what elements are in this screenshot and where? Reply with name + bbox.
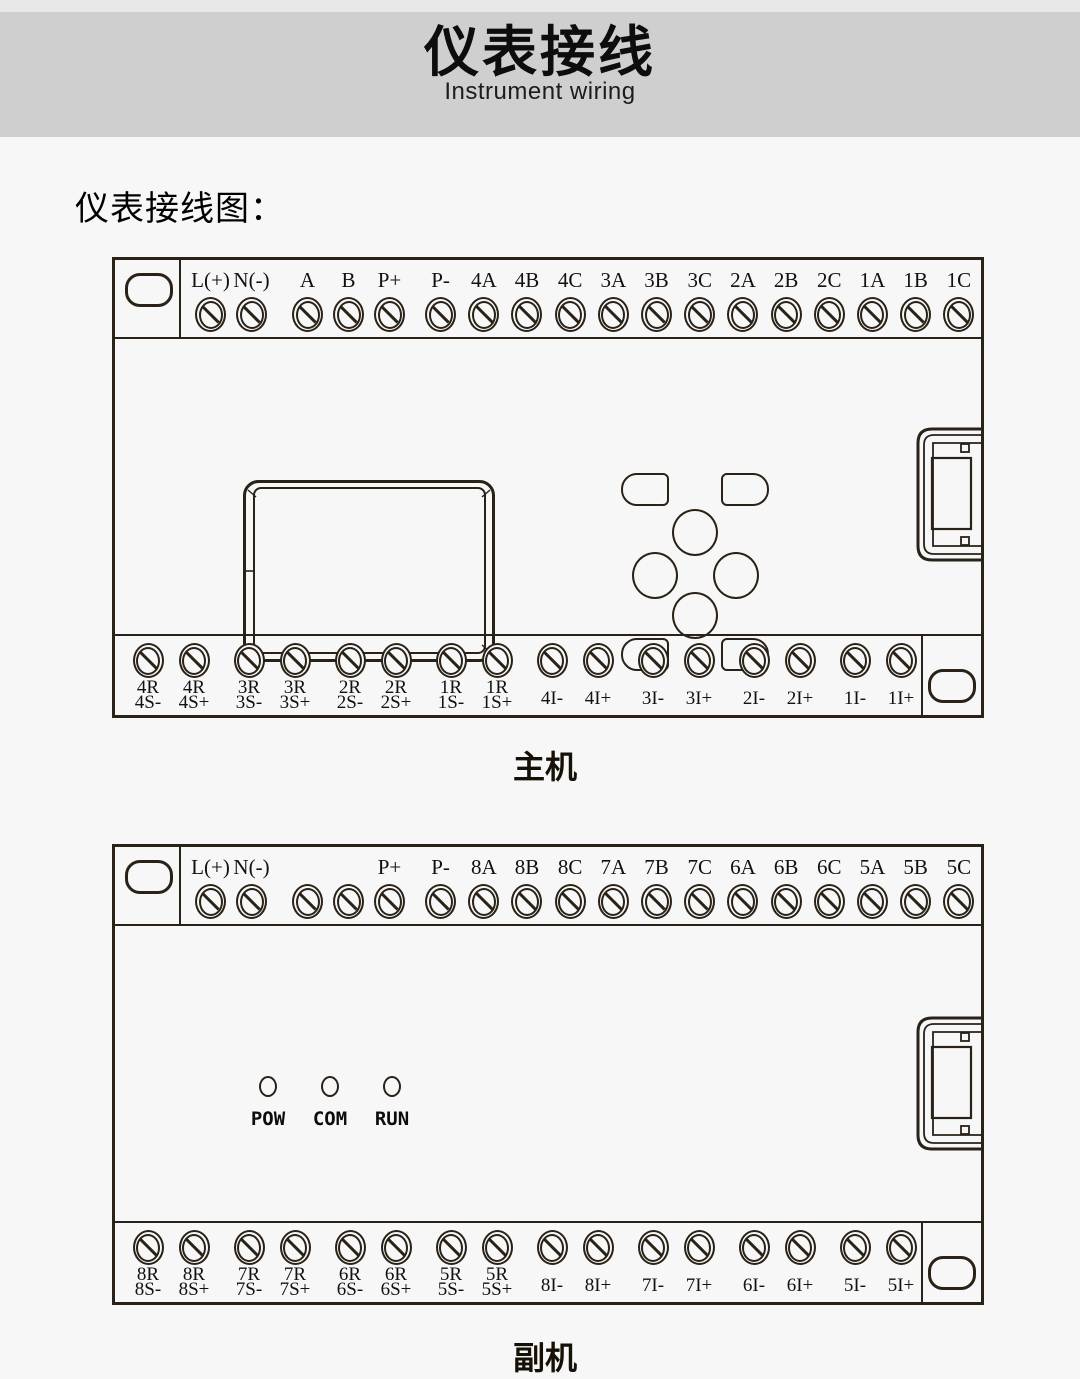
- screw-terminal-icon: [785, 643, 816, 678]
- terminal-label-line: 5S+: [482, 1282, 513, 1297]
- terminal: 8I+: [575, 1230, 621, 1302]
- key-button-right: [713, 552, 759, 599]
- terminal: 7R7S-: [226, 1230, 272, 1302]
- terminal-label: 8C: [558, 856, 583, 879]
- pow-led-icon: [259, 1076, 277, 1097]
- terminal: 4B: [505, 260, 548, 337]
- screw-terminal-icon: [236, 297, 267, 332]
- terminal-group: 2R2S-2R2S+: [327, 643, 419, 715]
- terminal-label: 2A: [730, 269, 756, 292]
- terminal-label: P-: [431, 856, 450, 879]
- terminal: B: [328, 260, 369, 337]
- terminal-label: 4B: [515, 269, 540, 292]
- terminal-label-line: 1I+: [888, 691, 915, 706]
- terminal-label-line: 3S+: [280, 695, 311, 710]
- terminal: 3C: [678, 260, 721, 337]
- main-bottom-terminals: 4R4S-4R4S+3R3S-3R3S+2R2S-2R2S+1R1S-1R1S+…: [115, 636, 921, 715]
- screw-terminal-icon: [335, 643, 366, 678]
- terminal-group: P-4A4B4C3A3B3C2A2B2C1A1B1C: [419, 260, 980, 337]
- main-unit-caption: 主机: [112, 742, 978, 788]
- led-label: RUN: [375, 1108, 409, 1130]
- screw-terminal-icon: [727, 297, 758, 332]
- screw-terminal-icon: [335, 1230, 366, 1265]
- screw-terminal-icon: [943, 884, 974, 919]
- aux-bottom-terminals: 8R8S-8R8S+7R7S-7R7S+6R6S-6R6S+5R5S-5R5S+…: [115, 1223, 921, 1302]
- terminal-label: 8R8S+: [179, 1267, 210, 1297]
- terminal-label: 8I+: [585, 1267, 612, 1300]
- screw-terminal-icon: [234, 1230, 265, 1265]
- screw-terminal-icon: [195, 297, 226, 332]
- terminal-label: 1B: [903, 269, 928, 292]
- screw-terminal-icon: [739, 1230, 770, 1265]
- terminal-label: 4C: [558, 269, 583, 292]
- terminal-label: 2I+: [787, 680, 814, 713]
- terminal: 1C: [937, 260, 980, 337]
- led-indicator: POW: [237, 1076, 299, 1130]
- terminal-group: 7R7S-7R7S+: [226, 1230, 318, 1302]
- terminal-group: 5I-5I+: [832, 1230, 924, 1302]
- terminal: 1B: [894, 260, 937, 337]
- led-label: COM: [313, 1108, 347, 1130]
- mounting-hole-icon: [125, 860, 173, 894]
- terminal-label-line: 5I-: [844, 1278, 866, 1293]
- com-led-icon: [321, 1076, 339, 1097]
- key-button-top-left: [621, 473, 669, 506]
- terminal: 3A: [592, 260, 635, 337]
- screw-terminal-icon: [482, 1230, 513, 1265]
- led-label: POW: [251, 1108, 285, 1130]
- terminal: A: [287, 260, 328, 337]
- terminal-label-line: 2S-: [337, 695, 363, 710]
- terminal-label-line: 2S+: [381, 695, 412, 710]
- terminal: 7I-: [630, 1230, 676, 1302]
- main-top-terminals: L(+)N(-)ABP+P-4A4B4C3A3B3C2A2B2C1A1B1C: [182, 260, 981, 337]
- screw-terminal-icon: [292, 884, 323, 919]
- mounting-hole-icon: [928, 1256, 976, 1290]
- screw-terminal-icon: [684, 1230, 715, 1265]
- terminal-label-line: 7I+: [686, 1278, 713, 1293]
- screw-terminal-icon: [900, 297, 931, 332]
- terminal-label: 7R7S+: [280, 1267, 311, 1297]
- terminal-group: P-8A8B8C7A7B7C6A6B6C5A5B5C: [419, 847, 980, 924]
- terminal: 8C: [549, 847, 592, 924]
- main-unit-diagram: L(+)N(-)ABP+P-4A4B4C3A3B3C2A2B2C1A1B1C: [112, 257, 984, 718]
- screw-terminal-icon: [425, 884, 456, 919]
- terminal-label: B: [341, 269, 355, 292]
- screw-terminal-icon: [857, 884, 888, 919]
- screw-terminal-icon: [886, 1230, 917, 1265]
- terminal-label: 4A: [471, 269, 497, 292]
- key-button-left: [632, 552, 678, 599]
- terminal-label: 2B: [774, 269, 799, 292]
- screw-terminal-icon: [333, 297, 364, 332]
- terminal-label-line: 4S+: [179, 695, 210, 710]
- screw-terminal-icon: [555, 884, 586, 919]
- terminal-label: 3I+: [686, 680, 713, 713]
- screw-terminal-icon: [333, 884, 364, 919]
- terminal-group: 2I-2I+: [731, 643, 823, 715]
- aux-top-terminals: L(+)N(-)P+P-8A8B8C7A7B7C6A6B6C5A5B5C: [182, 847, 981, 924]
- screw-terminal-icon: [511, 884, 542, 919]
- terminal-group: 8R8S-8R8S+: [125, 1230, 217, 1302]
- terminal: 1I+: [878, 643, 924, 715]
- main-bottom-terminal-strip: 4R4S-4R4S+3R3S-3R3S+2R2S-2R2S+1R1S-1R1S+…: [115, 634, 981, 715]
- terminal-group: 8I-8I+: [529, 1230, 621, 1302]
- key-button-down: [672, 592, 718, 639]
- terminal: 8R8S+: [171, 1230, 217, 1302]
- terminal-label-line: 5S-: [438, 1282, 464, 1297]
- screw-terminal-icon: [511, 297, 542, 332]
- terminal-label: 2R2S+: [381, 680, 412, 710]
- section-heading: 仪表接线图：: [75, 181, 1080, 230]
- led-panel: POWCOMRUN: [237, 1076, 423, 1130]
- top-spacer-bar: [0, 0, 1080, 12]
- terminal-label: L(+): [191, 269, 230, 292]
- screw-terminal-icon: [179, 1230, 210, 1265]
- terminal: 7I+: [676, 1230, 722, 1302]
- page-banner: 仪表接线 Instrument wiring: [0, 12, 1080, 137]
- terminal-group: 6R6S-6R6S+: [327, 1230, 419, 1302]
- terminal-label: 8R8S-: [135, 1267, 161, 1297]
- terminal-label: 6R6S-: [337, 1267, 363, 1297]
- terminal: [328, 847, 369, 924]
- terminal: N(-): [231, 847, 272, 924]
- terminal: 4I+: [575, 643, 621, 715]
- led-indicator: RUN: [361, 1076, 423, 1130]
- terminal-label: 7B: [644, 856, 669, 879]
- terminal-label: 5R5S+: [482, 1267, 513, 1297]
- terminal-group: P+: [287, 847, 410, 924]
- screw-terminal-icon: [555, 297, 586, 332]
- terminal: 2R2S+: [373, 643, 419, 715]
- terminal: P+: [369, 260, 410, 337]
- screw-terminal-icon: [814, 884, 845, 919]
- led-indicator: COM: [299, 1076, 361, 1130]
- screw-terminal-icon: [771, 297, 802, 332]
- terminal-label-line: 5I+: [888, 1278, 915, 1293]
- screw-terminal-icon: [374, 297, 405, 332]
- terminal: 3I+: [676, 643, 722, 715]
- terminal: 3R3S-: [226, 643, 272, 715]
- terminal-group: 1I-1I+: [832, 643, 924, 715]
- terminal: 7A: [592, 847, 635, 924]
- screw-terminal-icon: [641, 297, 672, 332]
- terminal-label-line: 3I-: [642, 691, 664, 706]
- screw-terminal-icon: [598, 297, 629, 332]
- screw-terminal-icon: [133, 643, 164, 678]
- terminal: 6B: [765, 847, 808, 924]
- terminal-label: 6A: [730, 856, 756, 879]
- screw-terminal-icon: [638, 643, 669, 678]
- mounting-hole-cell: [921, 1223, 981, 1302]
- terminal: 1R1S-: [428, 643, 474, 715]
- banner-title: 仪表接线: [0, 12, 1080, 82]
- terminal: 3B: [635, 260, 678, 337]
- terminal: L(+): [190, 260, 231, 337]
- terminal-label-line: 6S+: [381, 1282, 412, 1297]
- screw-terminal-icon: [482, 643, 513, 678]
- terminal-label-line: 4I+: [585, 691, 612, 706]
- terminal-label-line: 1I-: [844, 691, 866, 706]
- screw-terminal-icon: [886, 643, 917, 678]
- terminal-label: 8A: [471, 856, 497, 879]
- terminal-label: 8B: [515, 856, 540, 879]
- terminal-label: 5I-: [844, 1267, 866, 1300]
- terminal-label: N(-): [233, 269, 269, 292]
- terminal-group: 4R4S-4R4S+: [125, 643, 217, 715]
- terminal: 5C: [937, 847, 980, 924]
- terminal-label: 1C: [947, 269, 972, 292]
- side-connector-icon: [915, 1016, 982, 1151]
- terminal: 4I-: [529, 643, 575, 715]
- terminal-label-line: 4I-: [541, 691, 563, 706]
- terminal-label: 1R1S+: [482, 680, 513, 710]
- mounting-hole-cell: [115, 847, 181, 924]
- terminal: 3I-: [630, 643, 676, 715]
- terminal-label: 1A: [860, 269, 886, 292]
- side-connector: [915, 427, 982, 567]
- terminal-label: P-: [431, 269, 450, 292]
- terminal-label: 1I+: [888, 680, 915, 713]
- terminal-label: 5I+: [888, 1267, 915, 1300]
- terminal-label: 7I-: [642, 1267, 664, 1300]
- screw-terminal-icon: [785, 1230, 816, 1265]
- terminal-group: 5R5S-5R5S+: [428, 1230, 520, 1302]
- terminal-label-line: 7I-: [642, 1278, 664, 1293]
- banner-subtitle: Instrument wiring: [0, 78, 1080, 106]
- terminal: 1A: [851, 260, 894, 337]
- terminal-label: 3I-: [642, 680, 664, 713]
- screw-terminal-icon: [468, 297, 499, 332]
- terminal: 5I+: [878, 1230, 924, 1302]
- terminal-label: 7R7S-: [236, 1267, 262, 1297]
- terminal: 8A: [462, 847, 505, 924]
- terminal: 6C: [808, 847, 851, 924]
- terminal-group: 1R1S-1R1S+: [428, 643, 520, 715]
- terminal: 7C: [678, 847, 721, 924]
- terminal-label: 3R3S+: [280, 680, 311, 710]
- aux-top-terminal-strip: L(+)N(-)P+P-8A8B8C7A7B7C6A6B6C5A5B5C: [115, 847, 981, 926]
- terminal-label: 6B: [774, 856, 799, 879]
- screw-terminal-icon: [195, 884, 226, 919]
- terminal: 2B: [765, 260, 808, 337]
- terminal: L(+): [190, 847, 231, 924]
- terminal-label-line: 7S-: [236, 1282, 262, 1297]
- terminal: P-: [419, 260, 462, 337]
- terminal: 8B: [505, 847, 548, 924]
- terminal: 2R2S-: [327, 643, 373, 715]
- aux-unit-diagram: L(+)N(-)P+P-8A8B8C7A7B7C6A6B6C5A5B5C POW…: [112, 844, 984, 1305]
- screw-terminal-icon: [234, 643, 265, 678]
- terminal-label: 1I-: [844, 680, 866, 713]
- terminal-group: L(+)N(-): [190, 260, 272, 337]
- aux-unit-faceplate: POWCOMRUN: [115, 926, 981, 1221]
- screw-terminal-icon: [638, 1230, 669, 1265]
- terminal-label: 4I+: [585, 680, 612, 713]
- terminal: 5R5S+: [474, 1230, 520, 1302]
- terminal: 6I-: [731, 1230, 777, 1302]
- terminal-label-line: 6S-: [337, 1282, 363, 1297]
- terminal-label: 6I-: [743, 1267, 765, 1300]
- terminal-label: 6R6S+: [381, 1267, 412, 1297]
- terminal-group: 7I-7I+: [630, 1230, 722, 1302]
- mounting-hole-icon: [125, 273, 173, 307]
- screw-terminal-icon: [771, 884, 802, 919]
- terminal-label-line: 1S+: [482, 695, 513, 710]
- terminal-label: 2I-: [743, 680, 765, 713]
- terminal-label: 4R4S+: [179, 680, 210, 710]
- terminal: 4R4S-: [125, 643, 171, 715]
- terminal-label-line: 6I-: [743, 1278, 765, 1293]
- terminal-label: P+: [378, 856, 402, 879]
- terminal-label: 3R3S-: [236, 680, 262, 710]
- terminal-group: ABP+: [287, 260, 410, 337]
- screw-terminal-icon: [943, 297, 974, 332]
- terminal-label: 3B: [644, 269, 669, 292]
- terminal: 4A: [462, 260, 505, 337]
- terminal: 6R6S+: [373, 1230, 419, 1302]
- screw-terminal-icon: [814, 297, 845, 332]
- terminal-label: 2C: [817, 269, 842, 292]
- terminal: 4C: [549, 260, 592, 337]
- key-button-top-right: [721, 473, 769, 506]
- terminal-label-line: 4S-: [135, 695, 161, 710]
- terminal: 7R7S+: [272, 1230, 318, 1302]
- terminal-label: 7C: [687, 856, 712, 879]
- terminal: 1I-: [832, 643, 878, 715]
- run-led-icon: [383, 1076, 401, 1097]
- terminal-label-line: 2I+: [787, 691, 814, 706]
- terminal-group: 6I-6I+: [731, 1230, 823, 1302]
- terminal: 6R6S-: [327, 1230, 373, 1302]
- terminal-group: L(+)N(-): [190, 847, 272, 924]
- screw-terminal-icon: [381, 643, 412, 678]
- screw-terminal-icon: [857, 297, 888, 332]
- screw-terminal-icon: [900, 884, 931, 919]
- terminal-label: 5C: [947, 856, 972, 879]
- terminal: 5I-: [832, 1230, 878, 1302]
- terminal-label: 6I+: [787, 1267, 814, 1300]
- screw-terminal-icon: [425, 297, 456, 332]
- screw-terminal-icon: [280, 643, 311, 678]
- screw-terminal-icon: [684, 643, 715, 678]
- screw-terminal-icon: [583, 643, 614, 678]
- terminal: 2C: [808, 260, 851, 337]
- terminal-label-line: 2I-: [743, 691, 765, 706]
- terminal-label-line: 3I+: [686, 691, 713, 706]
- side-connector-icon: [915, 427, 982, 562]
- terminal-label-line: 8S+: [179, 1282, 210, 1297]
- terminal-label: 5B: [903, 856, 928, 879]
- screw-terminal-icon: [641, 884, 672, 919]
- screw-terminal-icon: [537, 1230, 568, 1265]
- terminal: 2A: [721, 260, 764, 337]
- screw-terminal-icon: [583, 1230, 614, 1265]
- mounting-hole-icon: [928, 669, 976, 703]
- terminal-label: 6C: [817, 856, 842, 879]
- terminal-label: N(-): [233, 856, 269, 879]
- screw-terminal-icon: [436, 1230, 467, 1265]
- screw-terminal-icon: [381, 1230, 412, 1265]
- mounting-hole-cell: [921, 636, 981, 715]
- terminal-label: P+: [378, 269, 402, 292]
- terminal-label: 3C: [687, 269, 712, 292]
- terminal-label-line: 8S-: [135, 1282, 161, 1297]
- terminal: 5B: [894, 847, 937, 924]
- terminal-label-line: 3S-: [236, 695, 262, 710]
- terminal-label: A: [300, 269, 315, 292]
- terminal-label-line: 1S-: [438, 695, 464, 710]
- terminal-group: 4I-4I+: [529, 643, 621, 715]
- terminal-label-line: 6I+: [787, 1278, 814, 1293]
- terminal-label: 7A: [601, 856, 627, 879]
- screw-terminal-icon: [684, 297, 715, 332]
- terminal-label-line: 8I-: [541, 1278, 563, 1293]
- terminal-label: 4I-: [541, 680, 563, 713]
- screw-terminal-icon: [468, 884, 499, 919]
- screw-terminal-icon: [727, 884, 758, 919]
- terminal: 2I-: [731, 643, 777, 715]
- screw-terminal-icon: [684, 884, 715, 919]
- terminal: 3R3S+: [272, 643, 318, 715]
- terminal: 2I+: [777, 643, 823, 715]
- terminal: 7B: [635, 847, 678, 924]
- terminal: 8I-: [529, 1230, 575, 1302]
- screw-terminal-icon: [537, 643, 568, 678]
- terminal-group: 3I-3I+: [630, 643, 722, 715]
- terminal-label: 2R2S-: [337, 680, 363, 710]
- screw-terminal-icon: [133, 1230, 164, 1265]
- screw-terminal-icon: [280, 1230, 311, 1265]
- screw-terminal-icon: [436, 643, 467, 678]
- terminal: P+: [369, 847, 410, 924]
- side-connector: [915, 1016, 982, 1156]
- terminal-label: 1R1S-: [438, 680, 464, 710]
- terminal: 5A: [851, 847, 894, 924]
- terminal-label: 4R4S-: [135, 680, 161, 710]
- screw-terminal-icon: [292, 297, 323, 332]
- terminal: [287, 847, 328, 924]
- terminal-label: L(+): [191, 856, 230, 879]
- screw-terminal-icon: [236, 884, 267, 919]
- terminal-group: 3R3S-3R3S+: [226, 643, 318, 715]
- terminal: 8R8S-: [125, 1230, 171, 1302]
- terminal-label: 8I-: [541, 1267, 563, 1300]
- terminal: P-: [419, 847, 462, 924]
- terminal: 4R4S+: [171, 643, 217, 715]
- screw-terminal-icon: [374, 884, 405, 919]
- screw-terminal-icon: [840, 1230, 871, 1265]
- terminal-label-line: 8I+: [585, 1278, 612, 1293]
- terminal-label: 5R5S-: [438, 1267, 464, 1297]
- terminal: 5R5S-: [428, 1230, 474, 1302]
- aux-bottom-terminal-strip: 8R8S-8R8S+7R7S-7R7S+6R6S-6R6S+5R5S-5R5S+…: [115, 1221, 981, 1302]
- terminal-label: 3A: [601, 269, 627, 292]
- mounting-hole-cell: [115, 260, 181, 337]
- terminal-label: 5A: [860, 856, 886, 879]
- terminal-label: 7I+: [686, 1267, 713, 1300]
- main-unit-faceplate: [115, 339, 981, 634]
- screw-terminal-icon: [179, 643, 210, 678]
- aux-unit-caption: 副机: [112, 1333, 978, 1379]
- screw-terminal-icon: [840, 643, 871, 678]
- terminal: 6I+: [777, 1230, 823, 1302]
- terminal: N(-): [231, 260, 272, 337]
- terminal: 6A: [721, 847, 764, 924]
- terminal: 1R1S+: [474, 643, 520, 715]
- screw-terminal-icon: [739, 643, 770, 678]
- screw-terminal-icon: [598, 884, 629, 919]
